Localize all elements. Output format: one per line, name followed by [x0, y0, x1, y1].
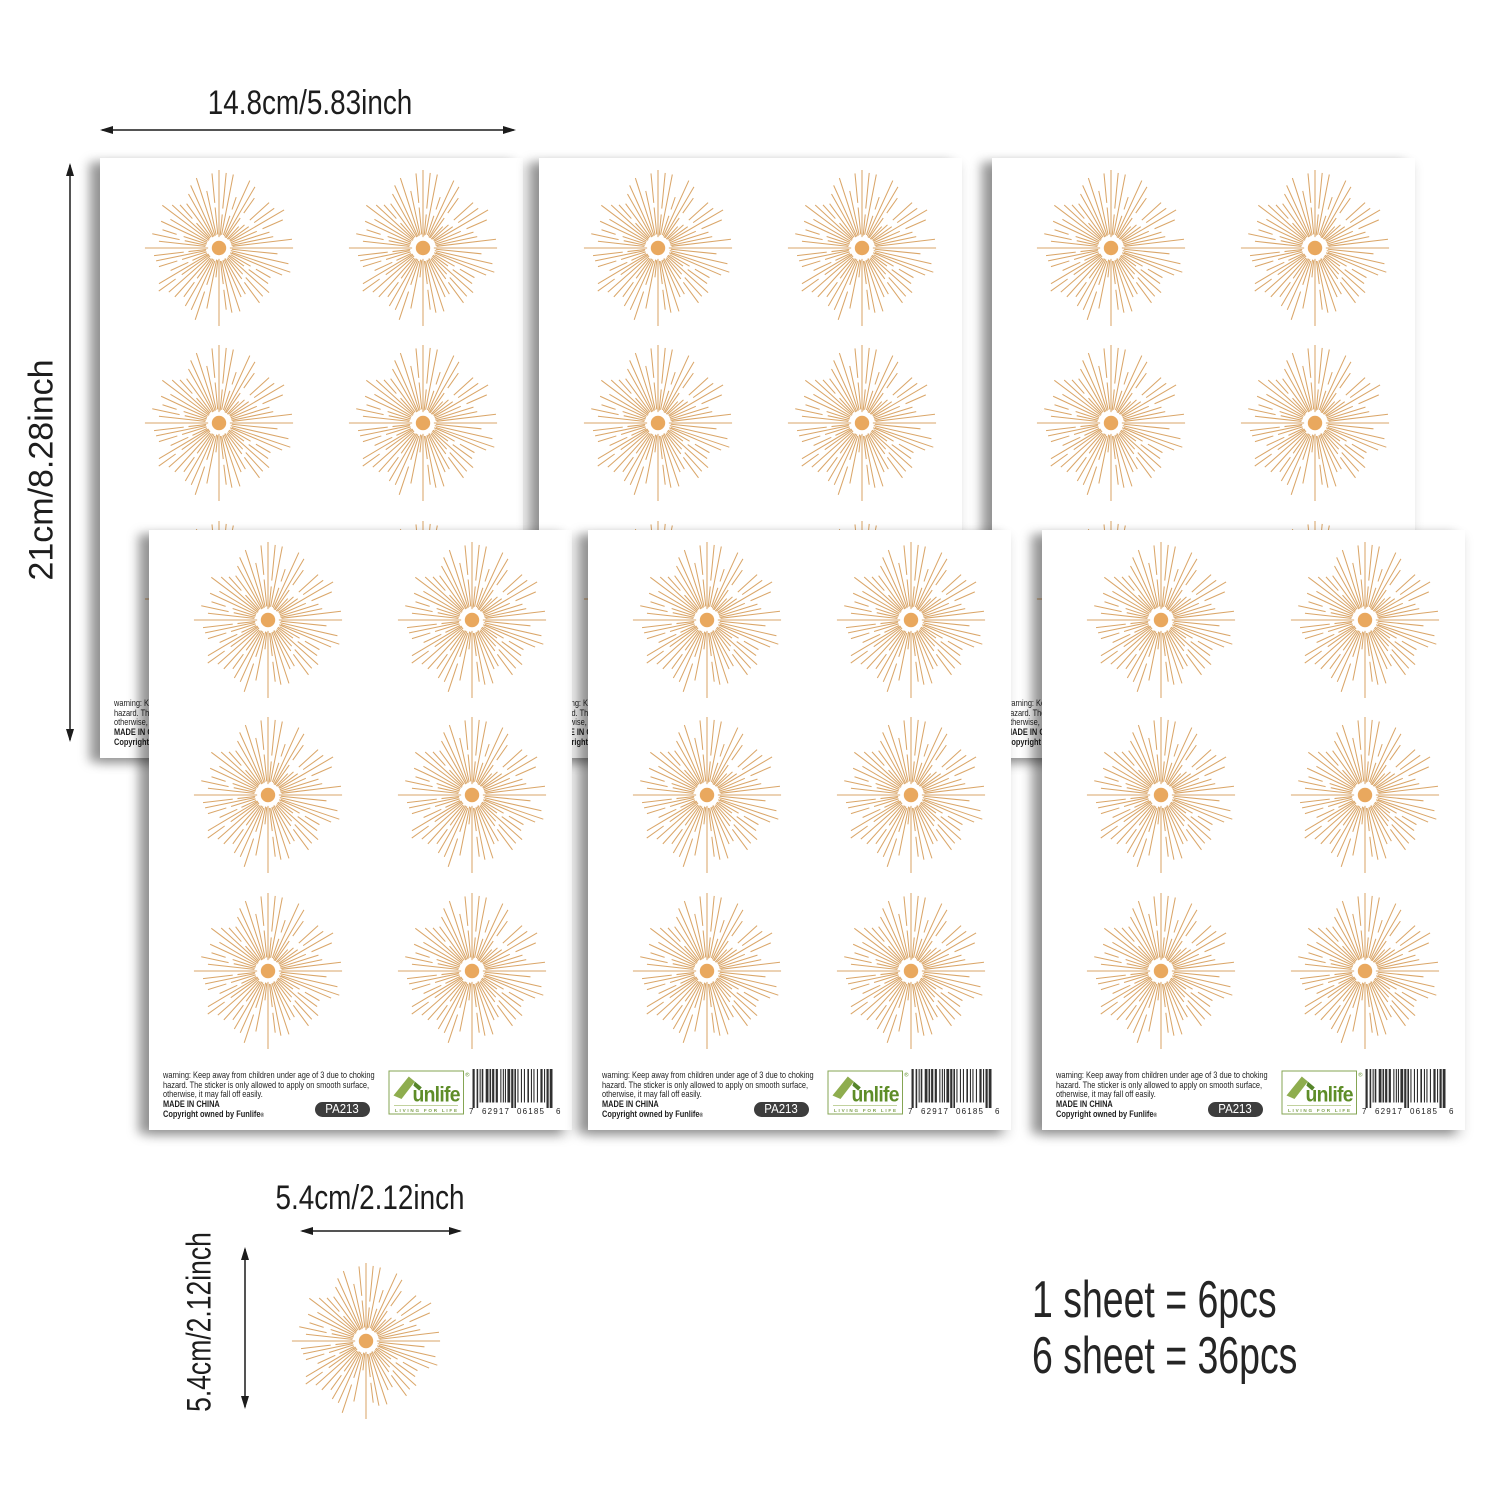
- svg-text:LIVING FOR LIFE: LIVING FOR LIFE: [1288, 1108, 1352, 1113]
- svg-text:62917: 62917: [1375, 1107, 1403, 1115]
- svg-text:6: 6: [1449, 1107, 1454, 1115]
- svg-text:7: 7: [1362, 1107, 1367, 1115]
- svg-text:6: 6: [995, 1107, 1000, 1115]
- svg-text:unlife: unlife: [852, 1083, 900, 1107]
- svg-text:7: 7: [908, 1107, 913, 1115]
- svg-text:unlife: unlife: [1306, 1083, 1354, 1107]
- svg-text:06185: 06185: [1410, 1107, 1438, 1115]
- svg-text:LIVING FOR LIFE: LIVING FOR LIFE: [395, 1108, 459, 1113]
- svg-text:6: 6: [556, 1107, 561, 1115]
- svg-text:06185: 06185: [956, 1107, 984, 1115]
- svg-text:62917: 62917: [482, 1107, 510, 1115]
- svg-text:06185: 06185: [517, 1107, 545, 1115]
- svg-text:7: 7: [469, 1107, 474, 1115]
- svg-text:62917: 62917: [921, 1107, 949, 1115]
- svg-text:LIVING FOR LIFE: LIVING FOR LIFE: [834, 1108, 898, 1113]
- svg-text:unlife: unlife: [413, 1083, 461, 1107]
